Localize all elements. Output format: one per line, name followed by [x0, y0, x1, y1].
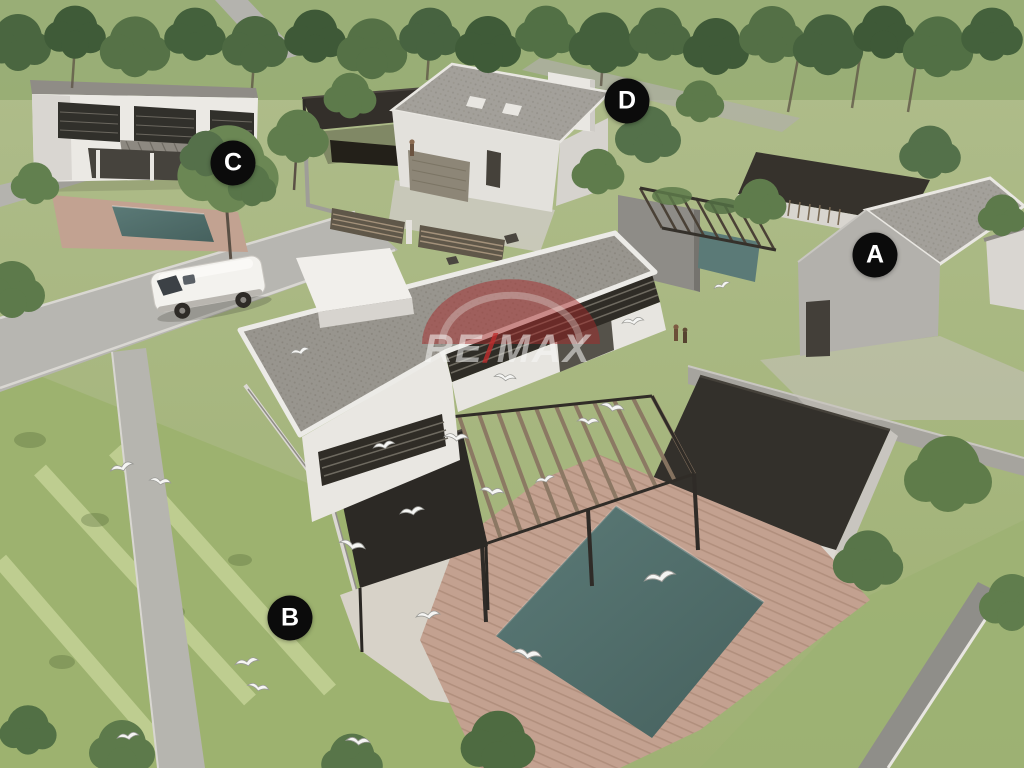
marker-a: A — [853, 233, 898, 278]
marker-b-label: B — [281, 604, 299, 633]
marker-c: C — [211, 141, 256, 186]
person-d — [409, 139, 414, 156]
marker-a-label: A — [866, 241, 884, 270]
marker-d-label: D — [618, 87, 636, 116]
scene-rendering — [0, 0, 1024, 768]
marker-b: B — [268, 596, 313, 641]
listing-photo: RE/MAX A B C D — [0, 0, 1024, 768]
marker-c-label: C — [224, 149, 242, 178]
marker-d: D — [605, 79, 650, 124]
